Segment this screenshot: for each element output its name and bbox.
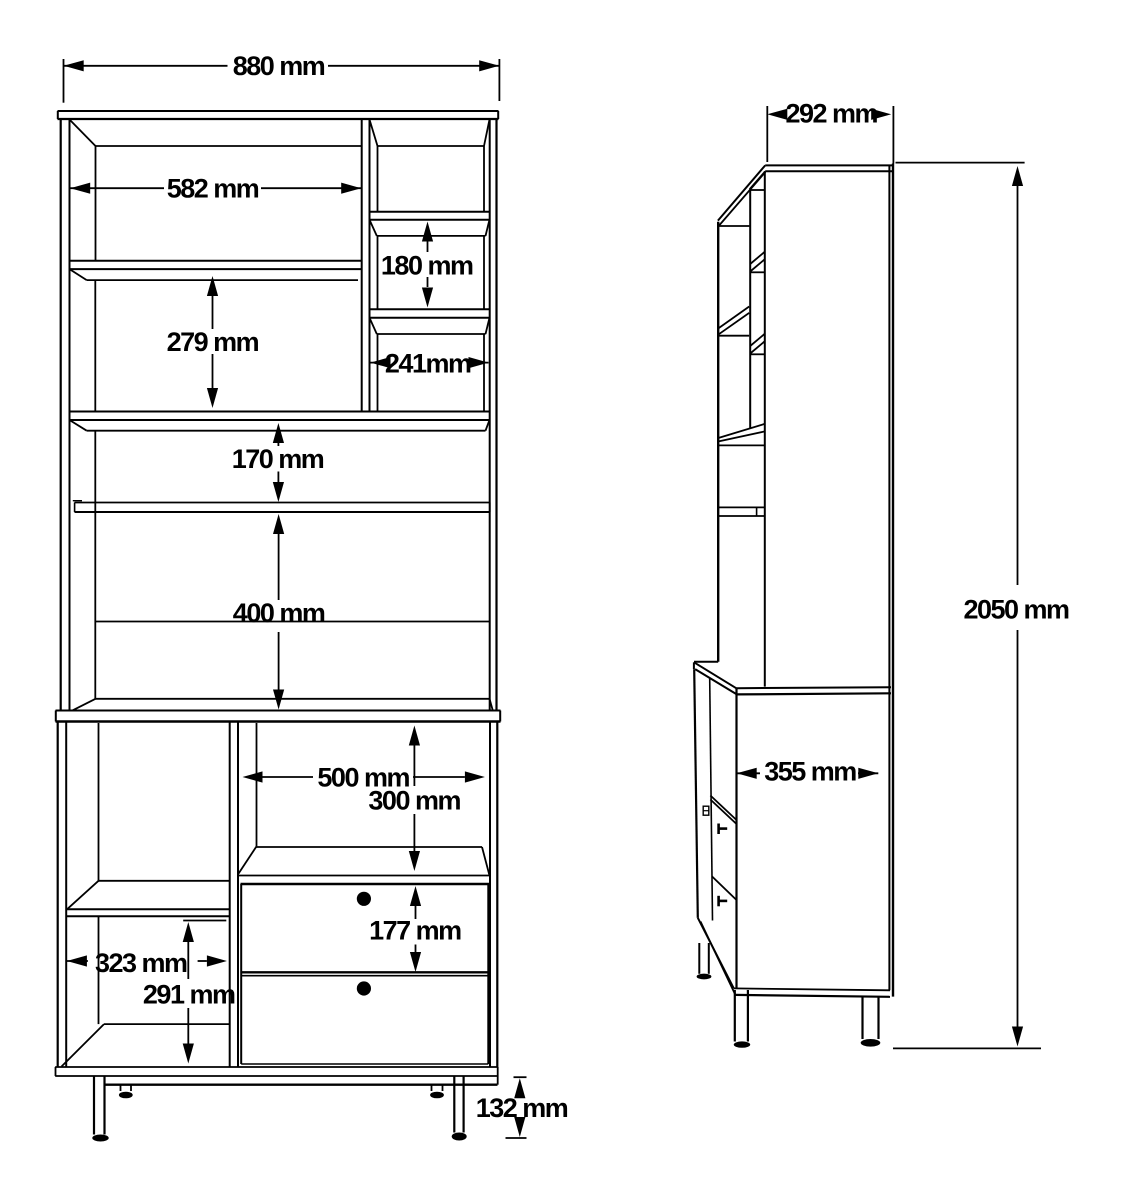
svg-text:292 mm: 292 mm bbox=[786, 98, 878, 128]
svg-text:279 mm: 279 mm bbox=[167, 327, 259, 357]
svg-text:323 mm: 323 mm bbox=[95, 948, 187, 978]
svg-text:291 mm: 291 mm bbox=[143, 979, 235, 1009]
svg-text:180 mm: 180 mm bbox=[381, 251, 473, 281]
svg-text:582 mm: 582 mm bbox=[167, 174, 259, 204]
svg-text:2050 mm: 2050 mm bbox=[963, 595, 1069, 625]
svg-text:177 mm: 177 mm bbox=[369, 916, 461, 946]
svg-text:241mm: 241mm bbox=[385, 348, 471, 378]
svg-text:132 mm: 132 mm bbox=[476, 1093, 568, 1123]
svg-text:170 mm: 170 mm bbox=[232, 444, 324, 474]
svg-text:355 mm: 355 mm bbox=[764, 756, 856, 786]
svg-text:400 mm: 400 mm bbox=[233, 598, 325, 628]
svg-text:300 mm: 300 mm bbox=[368, 786, 460, 816]
svg-text:880 mm: 880 mm bbox=[233, 51, 325, 81]
